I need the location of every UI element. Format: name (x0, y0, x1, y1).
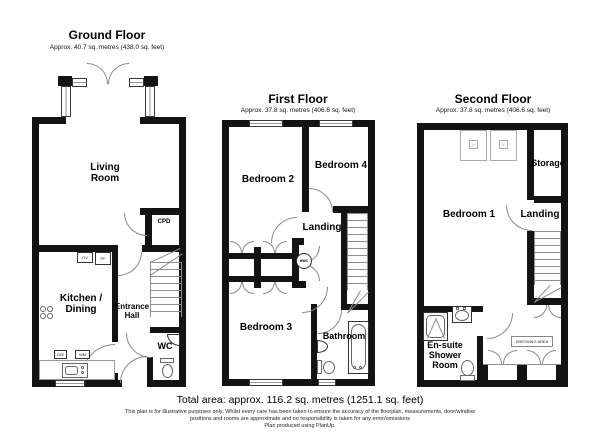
room-label-storage: Storage (531, 158, 565, 168)
wall (254, 247, 261, 288)
room-label-kitchen-dining: Kitchen / Dining (52, 293, 110, 315)
dressing-area-label: DRESSING AREA (516, 339, 549, 344)
door-swing-arc (242, 241, 254, 253)
fridge-freezer-label: FF (101, 256, 106, 261)
door-swing-arc (534, 305, 547, 318)
door-swing-arc (503, 350, 517, 364)
wall (140, 117, 186, 124)
tap-icon (456, 307, 459, 310)
door-swing-arc (527, 350, 541, 364)
fridge-freezer-appliance: FF (95, 252, 111, 265)
window (319, 120, 353, 127)
oven-appliance: OV (77, 252, 93, 263)
wall (368, 120, 375, 386)
dishwasher-appliance: DW (54, 350, 67, 359)
door-swing-arc (275, 282, 287, 294)
room-label-bedroom-4: Bedroom 4 (315, 160, 367, 171)
tap-icon (463, 307, 466, 310)
room-label-cpd: CPD (158, 219, 171, 225)
wall (527, 231, 534, 302)
wc-toilet-bowl (162, 364, 173, 378)
door-swing-arc (487, 313, 513, 339)
door-swing-arc (124, 213, 147, 236)
skylight-vent-icon: V (469, 140, 478, 149)
wall (150, 327, 179, 333)
wall (229, 253, 299, 259)
door-swing-arc (230, 241, 242, 253)
floor-area-second: Approx. 37.8 sq. metres (406.6 sq. feet) (436, 107, 551, 114)
window (55, 380, 85, 387)
door-swing-arc (548, 305, 561, 318)
room-label-bedroom-1: Bedroom 1 (443, 209, 495, 220)
wall (32, 117, 39, 387)
wall (534, 196, 561, 203)
skylight-vent-icon: V (499, 140, 508, 149)
window (249, 120, 283, 127)
wall (147, 380, 186, 387)
disclaimer-line-1: This plan is for illustrative purposes o… (125, 409, 475, 415)
wall (336, 379, 375, 386)
wall (341, 304, 375, 310)
door-swing-arc (488, 350, 502, 364)
tap-icon (81, 366, 84, 369)
bathroom-toilet-bowl (323, 361, 335, 374)
staircase (347, 213, 368, 290)
floor-area-first: Approx. 37.8 sq. metres (406.6 sq. feet) (241, 107, 356, 114)
hob-burner-icon (40, 306, 46, 312)
room-label-ensuite: En-suite Shower Room (420, 340, 470, 370)
ensuite-toilet-cistern (460, 375, 475, 381)
room-label-bedroom-3: Bedroom 3 (240, 322, 292, 333)
door-swing-arc (87, 63, 108, 84)
tap-icon (81, 371, 84, 374)
window (318, 379, 336, 386)
window (249, 379, 283, 386)
floor-title-first: First Floor (268, 92, 327, 106)
hwc-label: HWC (300, 259, 308, 263)
disclaimer-line-2: positions and rooms are approximate and … (190, 416, 410, 422)
skylight-label: V (472, 142, 475, 147)
wall (353, 120, 375, 127)
hot-water-cylinder: HWC (296, 253, 312, 269)
window (61, 86, 71, 117)
produced-by-text: Plan produced using PlanUp. (264, 423, 335, 429)
door-swing-arc (242, 282, 254, 294)
room-label-landing-second: Landing (521, 209, 560, 220)
total-area-text: Total area: approx. 116.2 sq. metres (12… (177, 394, 424, 406)
wall (417, 123, 568, 130)
door-swing-arc (309, 188, 333, 212)
staircase (534, 231, 561, 285)
door-swing-arc (271, 217, 297, 243)
wall (179, 117, 186, 387)
washing-machine-label: WM (79, 352, 86, 357)
door-swing-arc (108, 63, 129, 84)
wall (222, 379, 249, 386)
door-swing-arc (230, 282, 242, 294)
floor-title-ground: Ground Floor (69, 28, 146, 42)
wall (144, 76, 158, 86)
wc-toilet-cistern (160, 358, 174, 363)
wall (58, 76, 72, 86)
door-swing-arc (542, 350, 556, 364)
wall (417, 380, 568, 387)
room-label-landing-first: Landing (303, 222, 342, 233)
wall (517, 364, 527, 380)
wall (333, 206, 375, 213)
wall (482, 364, 488, 380)
stair-line (483, 364, 561, 365)
washing-machine-appliance: WM (75, 350, 90, 359)
tap-icon (353, 366, 356, 369)
wall (39, 245, 118, 252)
room-label-entrance-hall: Entrance Hall (110, 303, 154, 321)
window (129, 78, 144, 87)
dishwasher-label: DW (57, 352, 64, 357)
floor-title-second: Second Floor (455, 92, 532, 106)
ensuite-basin-icon (455, 310, 469, 321)
floorplan-canvas: OV FF DW WM HWC V V DRESSING AREA Ground… (0, 0, 600, 437)
dressing-area-box: DRESSING AREA (511, 336, 553, 347)
wall (32, 117, 66, 124)
sink-bowl-icon (65, 366, 78, 375)
oven-label: OV (82, 255, 88, 260)
door-swing-arc (118, 252, 142, 276)
wall (222, 120, 229, 386)
door-swing-arc (126, 333, 151, 358)
tap-icon (359, 366, 362, 369)
window (145, 86, 155, 117)
hob-burner-icon (40, 313, 46, 319)
wall (222, 120, 249, 127)
bathroom-toilet-cistern (317, 360, 322, 374)
wall (147, 357, 153, 380)
skylight-label: V (502, 142, 505, 147)
wall (556, 364, 561, 380)
floor-area-ground: Approx. 40.7 sq. metres (438.0 sq. feet) (50, 44, 165, 51)
room-label-wc: WC (158, 341, 173, 351)
wall (85, 380, 122, 387)
room-label-bathroom: Bathroom (323, 331, 366, 341)
window (72, 78, 87, 87)
wall (32, 380, 55, 387)
wall (302, 127, 309, 212)
wall (299, 238, 304, 245)
door-swing-arc (263, 282, 275, 294)
room-label-bedroom-2: Bedroom 2 (242, 174, 294, 185)
bathroom-basin-icon (317, 340, 328, 353)
room-label-living-room: Living Room (82, 162, 128, 184)
wall (283, 120, 319, 127)
door-swing-arc (120, 356, 147, 383)
